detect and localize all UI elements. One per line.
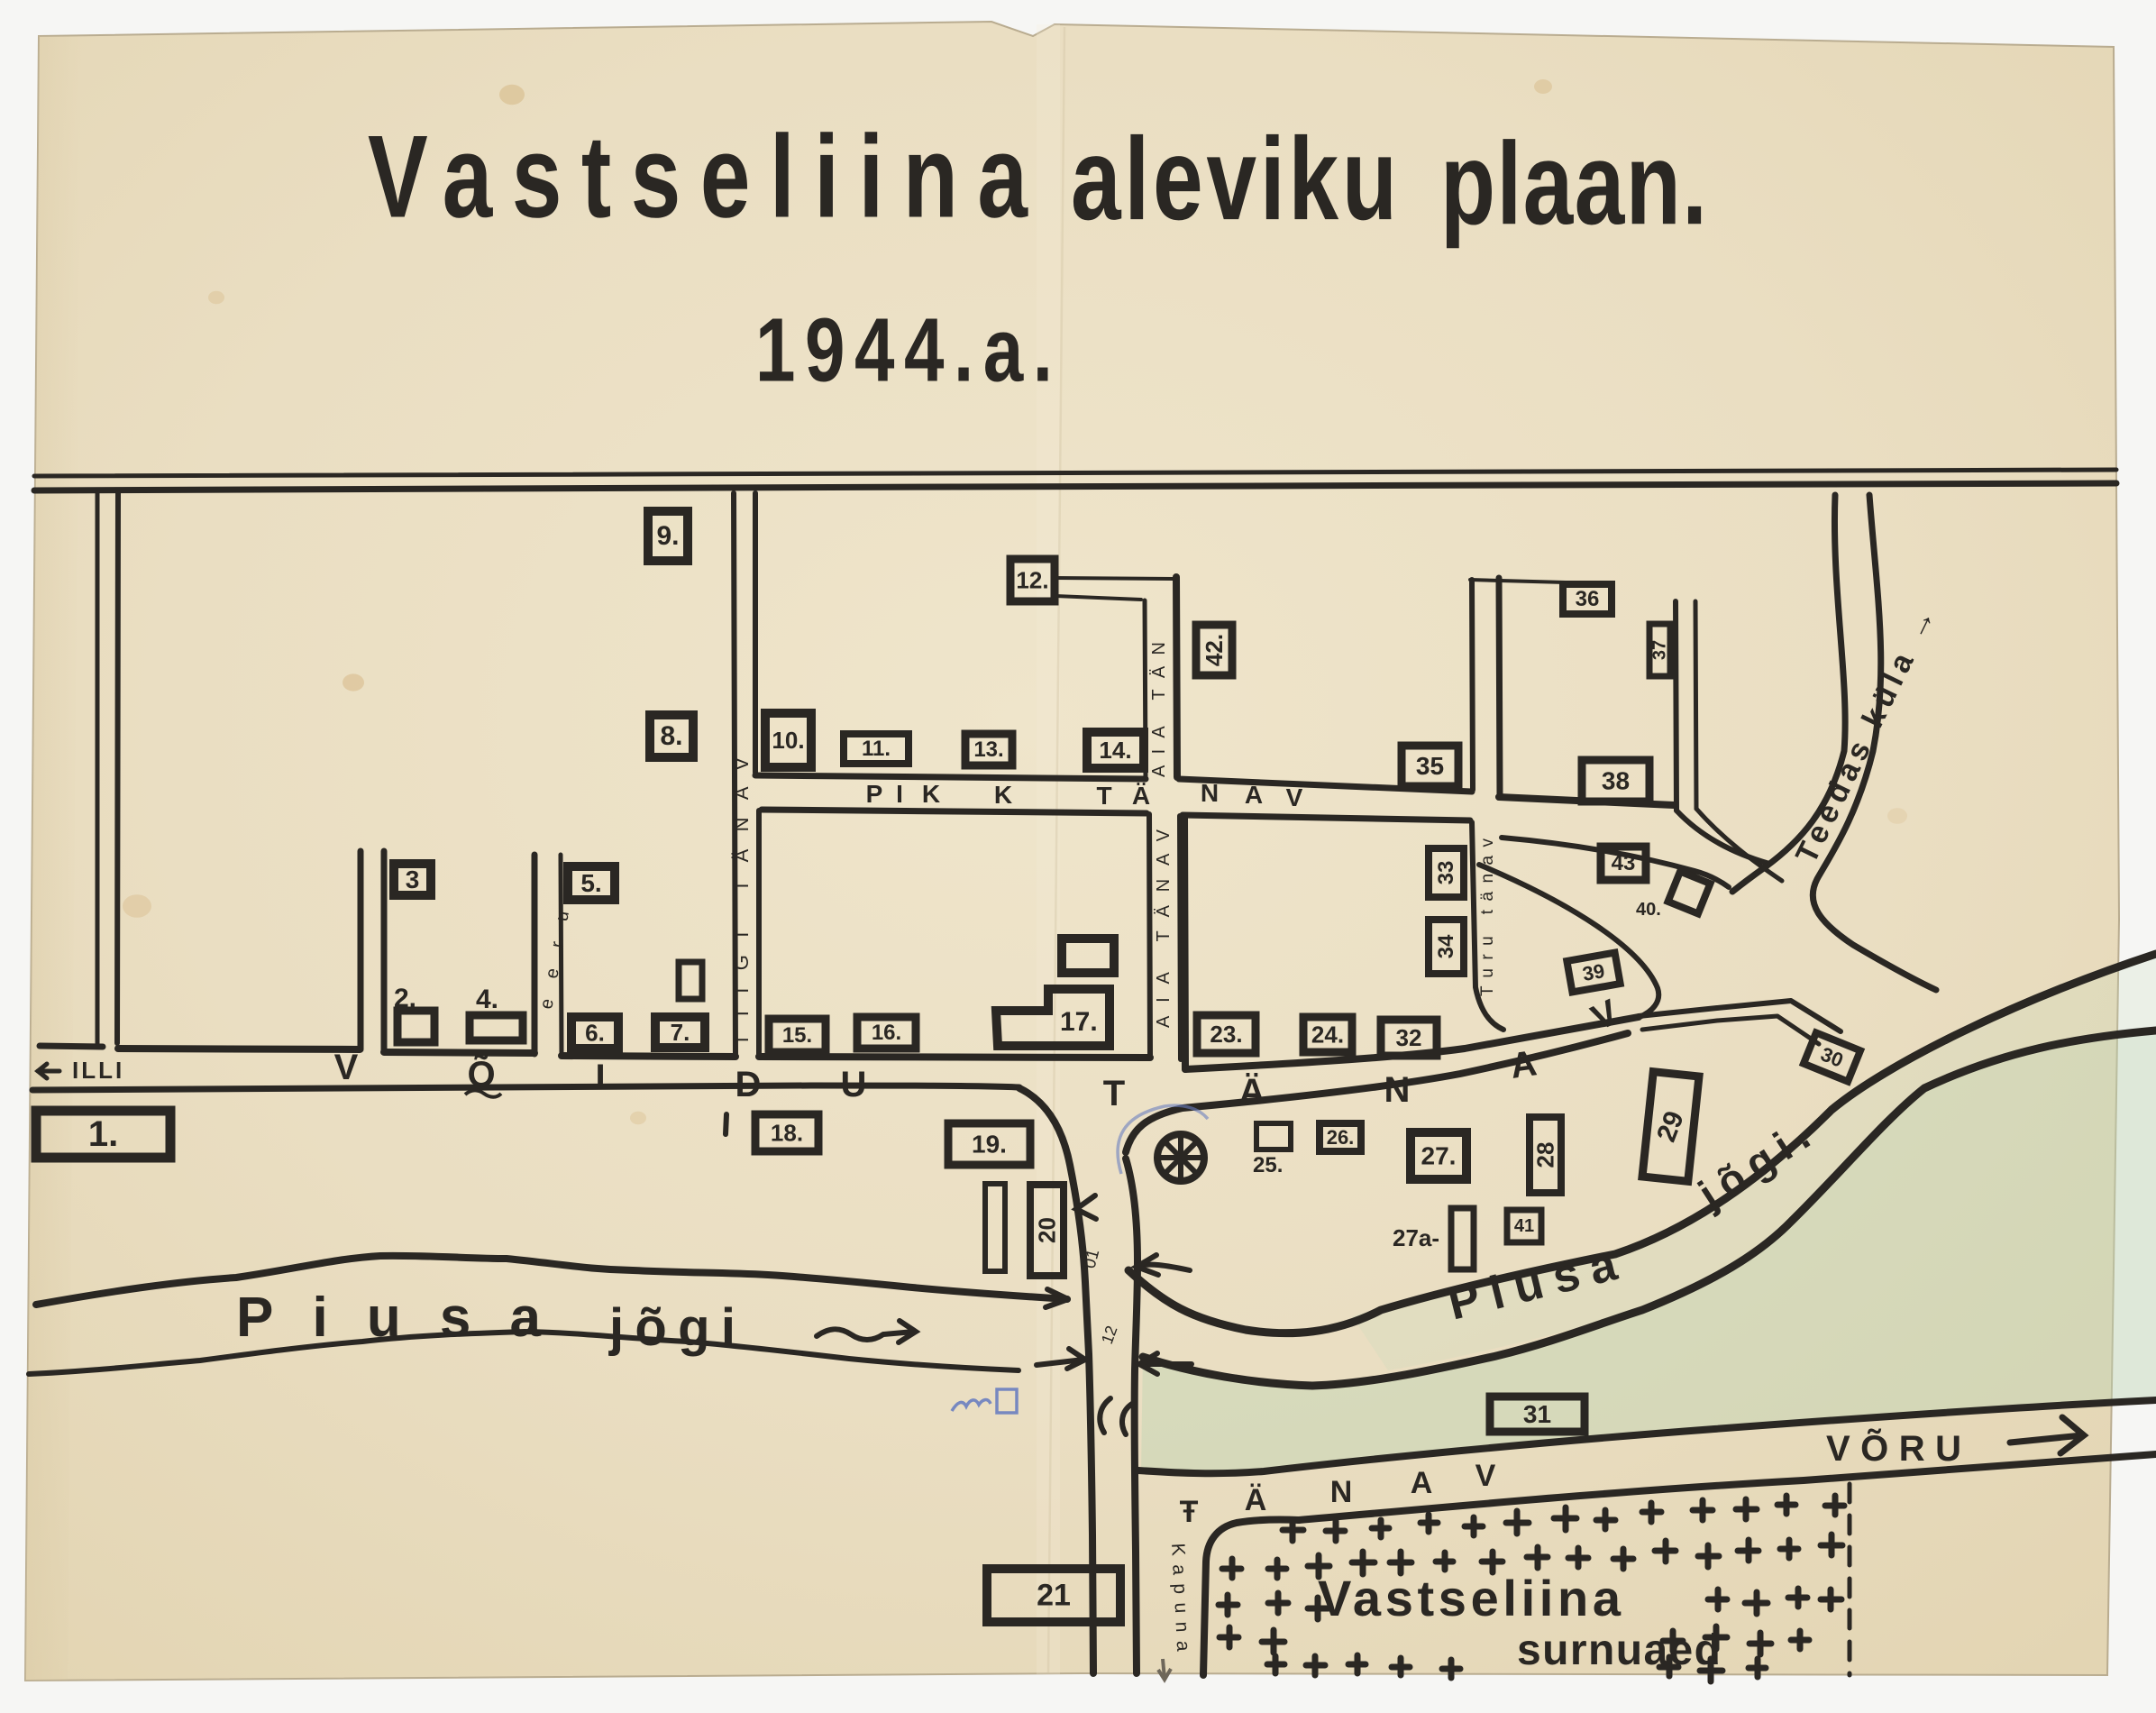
svg-text:13.: 13.	[973, 737, 1003, 762]
svg-text:ILLI: ILLI	[72, 1057, 124, 1084]
svg-text:V: V	[334, 1048, 359, 1087]
svg-text:37: 37	[1650, 640, 1670, 660]
svg-text:I: I	[595, 1058, 605, 1097]
svg-text:26.: 26.	[1327, 1126, 1355, 1149]
svg-text:40.: 40.	[1636, 900, 1661, 920]
svg-text:27.: 27.	[1421, 1142, 1457, 1170]
svg-text:Ä: Ä	[1132, 782, 1150, 810]
svg-text:N: N	[1330, 1475, 1353, 1509]
svg-text:16.: 16.	[872, 1021, 901, 1045]
svg-text:14.: 14.	[1099, 737, 1131, 764]
svg-text:36: 36	[1576, 587, 1600, 611]
svg-text:V: V	[1286, 783, 1303, 811]
svg-text:Ä: Ä	[1239, 1072, 1265, 1112]
svg-text:Ŧ: Ŧ	[1180, 1495, 1199, 1529]
svg-text:34: 34	[1434, 934, 1458, 958]
svg-text:20: 20	[1034, 1217, 1061, 1243]
svg-text:T: T	[1096, 782, 1111, 810]
svg-text:Õ: Õ	[467, 1053, 495, 1095]
svg-text:23.: 23.	[1210, 1021, 1242, 1048]
svg-text:15.: 15.	[782, 1023, 812, 1048]
svg-text:5.: 5.	[580, 869, 601, 897]
svg-text:3: 3	[406, 866, 420, 893]
svg-text:32: 32	[1396, 1024, 1422, 1051]
svg-text:K: K	[922, 780, 940, 808]
svg-text:11.: 11.	[862, 737, 891, 761]
svg-text:21: 21	[1037, 1579, 1071, 1613]
svg-text:Ä: Ä	[1245, 1483, 1267, 1517]
svg-text:41: 41	[1514, 1216, 1534, 1236]
svg-text:aleviku: aleviku	[1071, 113, 1397, 244]
svg-text:19.: 19.	[972, 1131, 1007, 1159]
svg-text:V: V	[1475, 1459, 1496, 1493]
svg-text:10.: 10.	[772, 727, 804, 754]
svg-text:surnuaed: surnuaed	[1517, 1626, 1721, 1674]
svg-text:25.: 25.	[1253, 1153, 1283, 1177]
svg-text:6.: 6.	[585, 1020, 605, 1047]
svg-text:35: 35	[1416, 752, 1444, 780]
svg-text:7.: 7.	[671, 1019, 690, 1046]
svg-text:U: U	[841, 1065, 867, 1104]
svg-text:T: T	[1103, 1074, 1125, 1113]
svg-text:N: N	[1201, 779, 1219, 807]
svg-text:9.: 9.	[656, 521, 679, 551]
svg-text:D: D	[735, 1065, 762, 1104]
svg-text:I: I	[896, 780, 903, 808]
svg-text:plaan.: plaan.	[1440, 118, 1707, 250]
svg-text:33: 33	[1434, 861, 1458, 885]
svg-text:4.: 4.	[476, 985, 498, 1014]
svg-text:P: P	[866, 780, 883, 808]
svg-text:A: A	[1411, 1466, 1433, 1500]
svg-text:8.: 8.	[660, 721, 682, 751]
svg-text:42.: 42.	[1201, 634, 1228, 666]
svg-text:2.: 2.	[394, 984, 416, 1013]
svg-text:24.: 24.	[1311, 1021, 1344, 1049]
svg-text:1.: 1.	[88, 1114, 118, 1154]
svg-text:43: 43	[1612, 851, 1636, 875]
svg-text:A: A	[1245, 781, 1263, 809]
svg-text:17.: 17.	[1060, 1007, 1098, 1037]
svg-text:K: K	[994, 781, 1012, 809]
svg-text:18.: 18.	[771, 1120, 803, 1147]
svg-text:N: N	[1384, 1070, 1411, 1110]
svg-text:A: A	[1508, 1043, 1539, 1086]
svg-text:38: 38	[1602, 767, 1630, 795]
svg-text:12.: 12.	[1016, 567, 1048, 594]
svg-text:31: 31	[1523, 1400, 1551, 1428]
svg-text:27a-: 27a-	[1393, 1224, 1439, 1251]
svg-text:39: 39	[1581, 959, 1606, 985]
svg-text:28: 28	[1532, 1142, 1559, 1168]
